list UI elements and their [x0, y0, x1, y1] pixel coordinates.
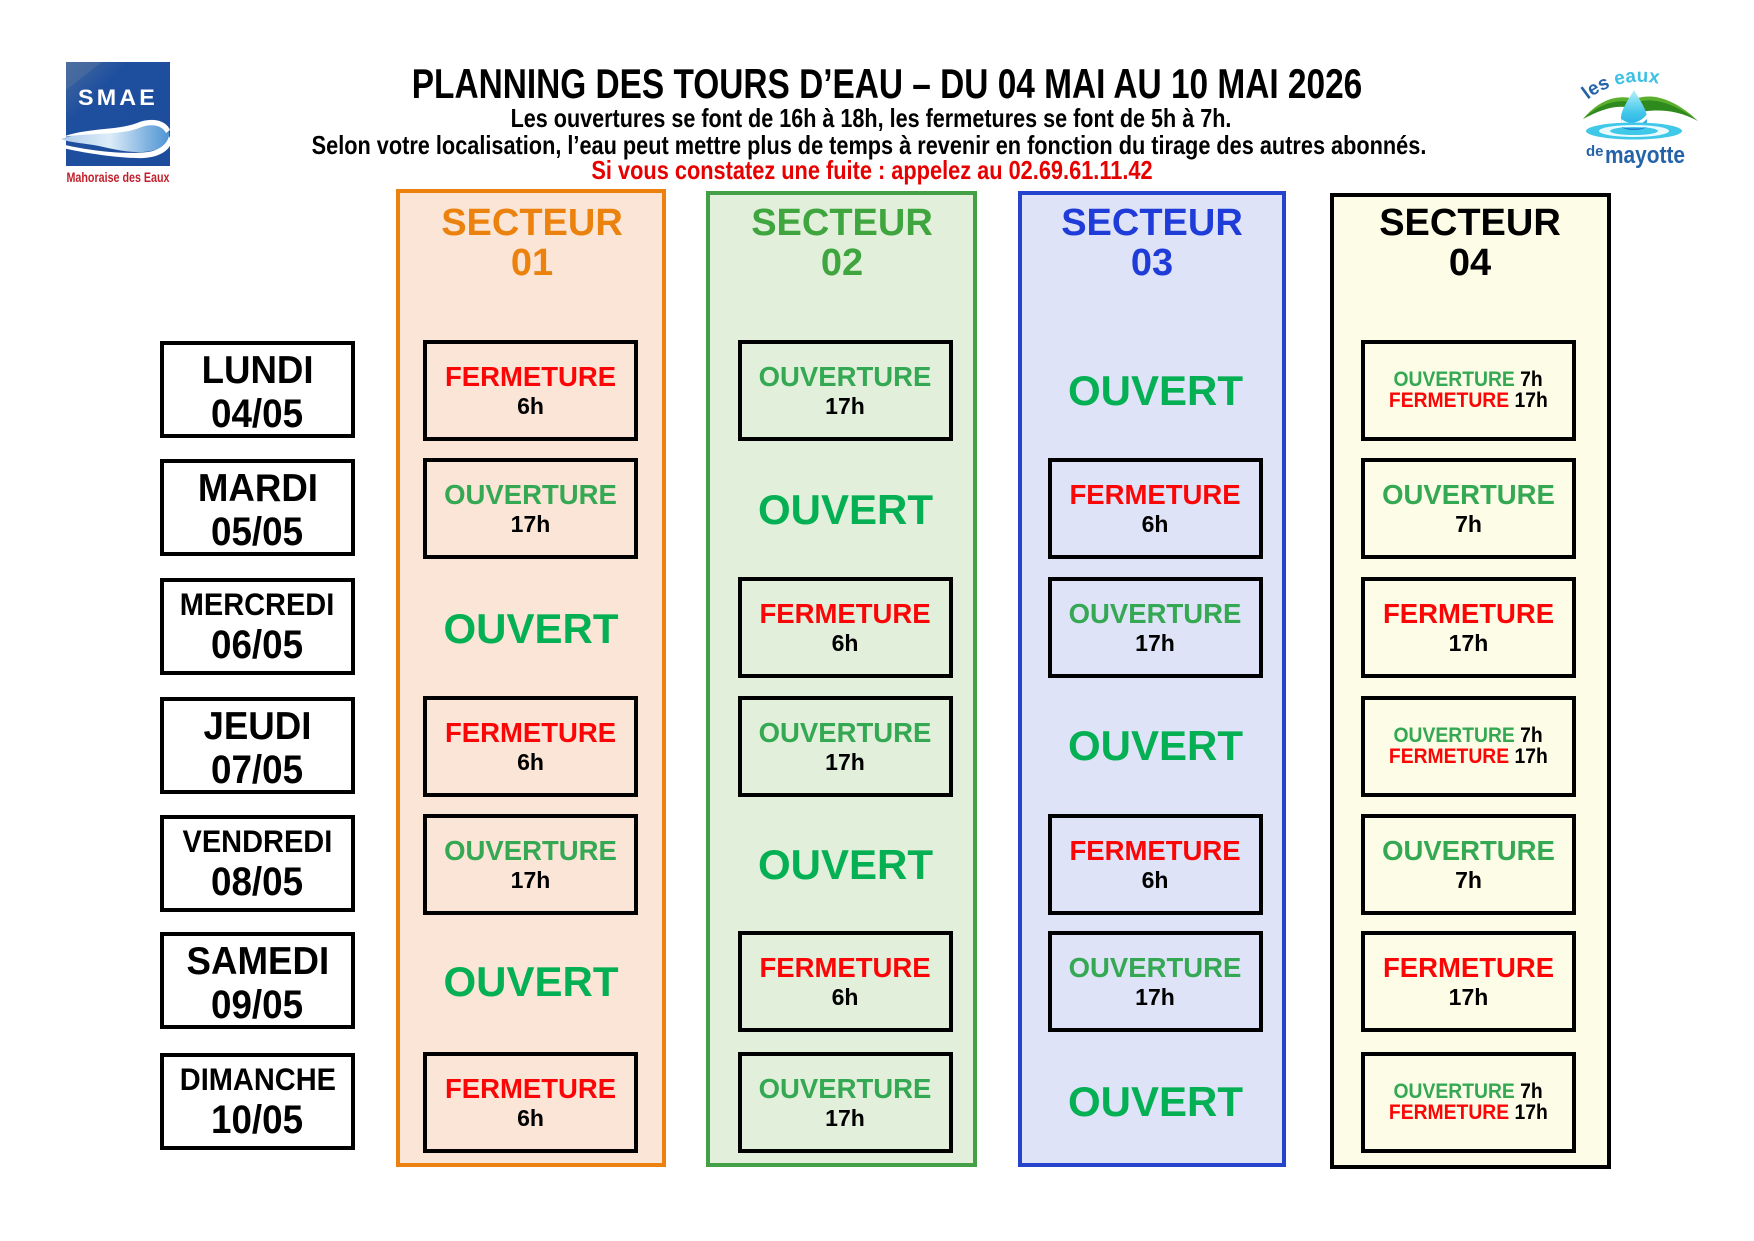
svg-text:Mahoraise des Eaux: Mahoraise des Eaux [67, 169, 170, 185]
svg-text:mayotte: mayotte [1605, 142, 1685, 169]
svg-text:SMAE: SMAE [78, 85, 158, 110]
svg-text:de: de [1586, 143, 1604, 160]
